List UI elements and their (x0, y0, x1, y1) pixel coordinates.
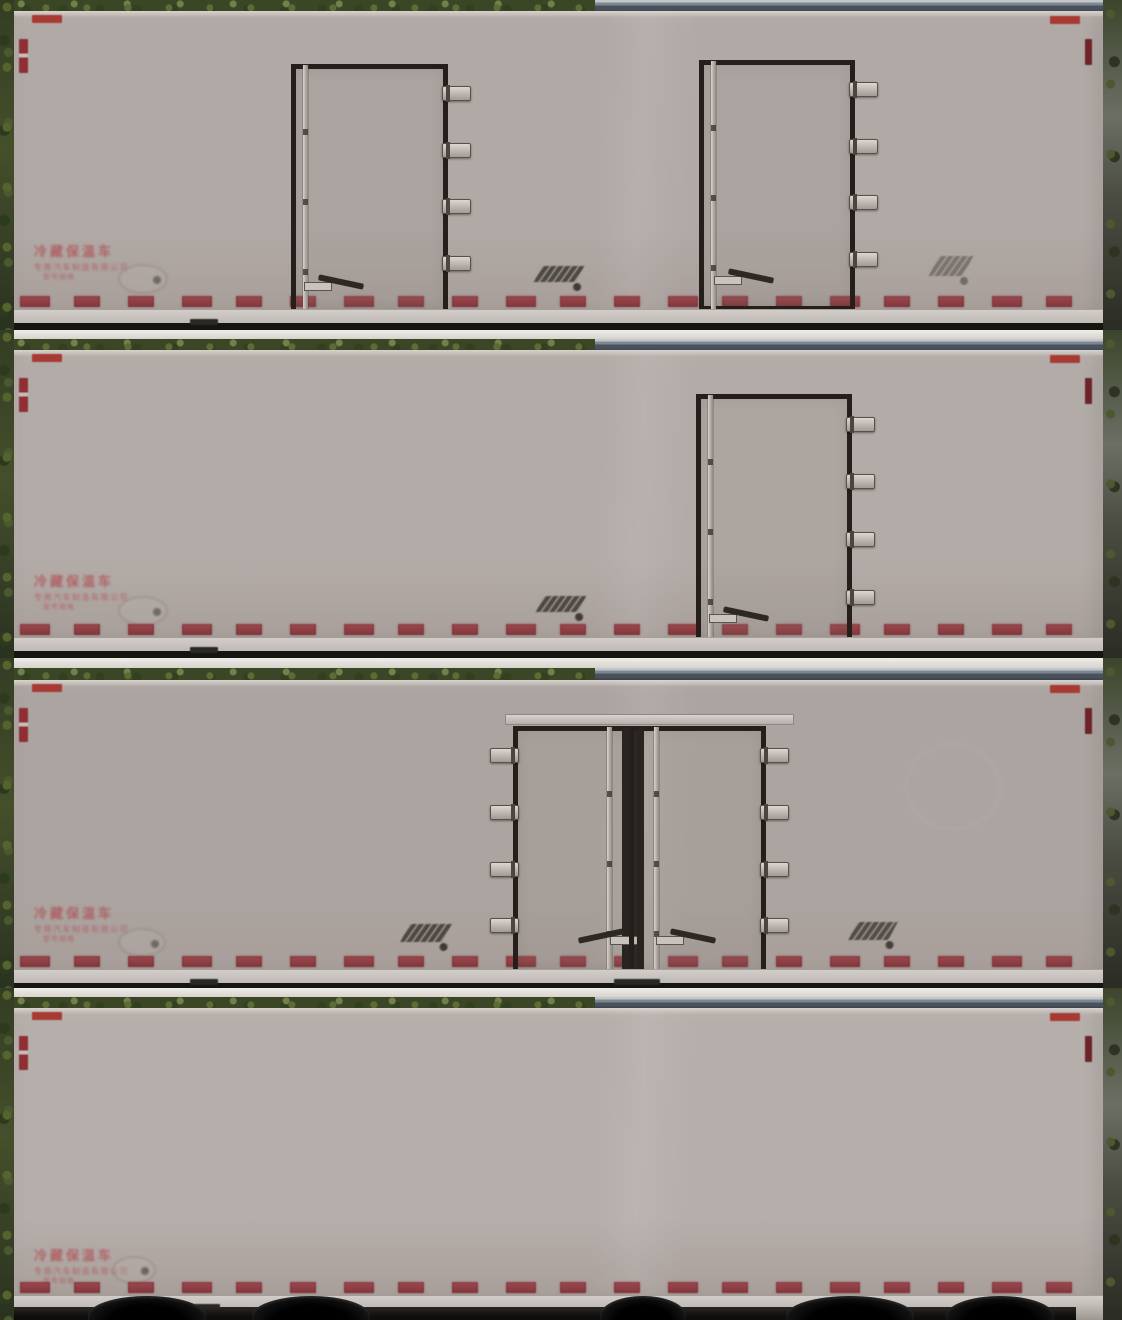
door-hinge (846, 474, 875, 489)
reflective-tape-segment (992, 624, 1022, 635)
reflective-tape-segment (182, 1282, 212, 1293)
reflective-tape-segment (560, 624, 586, 635)
reflector-left-vertical (19, 1036, 28, 1070)
hinge-pin (446, 255, 450, 272)
reflective-tape-segment (884, 1282, 910, 1293)
door-hinge (490, 918, 519, 933)
hinge-pin (511, 861, 515, 878)
reflective-tape-segment (776, 956, 802, 967)
reflective-tape-segment (290, 1282, 316, 1293)
reflective-tape-segment (20, 624, 50, 635)
hinge-pin (850, 473, 854, 490)
reflective-tape-segment (668, 296, 698, 307)
underbody-area (0, 1307, 1122, 1320)
reflective-tape-segment (776, 1282, 802, 1293)
door-handle (709, 607, 771, 625)
reflective-tape-segment (128, 296, 154, 307)
reflective-tape-segment (452, 296, 478, 307)
reflective-tape-segment (992, 1282, 1022, 1293)
door-hinge (760, 862, 789, 877)
door-lock-rod (637, 727, 644, 977)
reflective-tape-segment (884, 624, 910, 635)
cargo-door (699, 60, 855, 311)
left-foliage-edge (0, 988, 14, 1320)
reflective-tape-segment (344, 1282, 374, 1293)
right-background-edge (1103, 330, 1122, 658)
marking-line-3: 型号规格 (43, 604, 129, 611)
handle-keeper-plate (709, 614, 737, 623)
marking-line-3: 型号规格 (43, 936, 129, 943)
reflector-top-right (1050, 355, 1080, 363)
reflective-tape-segment (236, 296, 262, 307)
emblem-dot (575, 613, 583, 621)
photo-strip-side-with-one-door: 冷藏保温车专用汽车制造有限公司型号规格 (0, 330, 1122, 658)
reflective-tape-segment (74, 1282, 100, 1293)
reflector-left-vertical (19, 708, 28, 742)
cargo-box-panel (14, 1008, 1103, 1307)
hinge-pin (446, 142, 450, 159)
oval-logo-emblem (118, 928, 166, 957)
cargo-door (513, 726, 637, 978)
oval-logo-emblem (118, 596, 168, 626)
reflective-tape-segment (1046, 1282, 1072, 1293)
door-hinge (442, 143, 471, 158)
door-hinge (490, 862, 519, 877)
emblem-dot (573, 283, 581, 291)
reflective-tape-segment (884, 296, 910, 307)
panel-marking-text: 冷藏保温车专用汽车制造有限公司型号规格 (34, 246, 129, 281)
door-top-sill (505, 714, 794, 725)
emblem-dot (153, 276, 161, 284)
door-hinge (846, 590, 875, 605)
reflective-tape-segment (128, 624, 154, 635)
marking-line-3: 型号规格 (43, 274, 129, 281)
reflector-right-vertical (1085, 708, 1092, 734)
reflective-tape-segment (668, 1282, 698, 1293)
left-foliage-edge (0, 0, 14, 330)
reflective-tape-segment (290, 624, 316, 635)
reflective-tape-segment (344, 956, 374, 967)
door-handle (656, 929, 718, 947)
light-streak (591, 11, 697, 322)
reflector-top-left (32, 1012, 62, 1020)
left-foliage-edge (0, 658, 14, 988)
reflector-top-left (32, 15, 62, 23)
door-handle (304, 275, 366, 293)
box-top-rail (14, 350, 1103, 355)
reflective-tape-segment (398, 1282, 424, 1293)
hinge-pin (764, 917, 768, 934)
reflective-tape-segment (128, 1282, 154, 1293)
door-hinge (442, 256, 471, 271)
door-hinge (760, 748, 789, 763)
box-top-rail (14, 1008, 1103, 1013)
left-foliage-edge (0, 330, 14, 658)
marking-line-2: 专用汽车制造有限公司 (34, 594, 129, 602)
hinge-pin (850, 531, 854, 548)
hinge-pin (853, 194, 857, 211)
reflective-tape-segment (938, 624, 964, 635)
door-hinge (760, 918, 789, 933)
emblem-dot (886, 941, 894, 949)
hinge-pin (511, 747, 515, 764)
emblem-dot (960, 277, 968, 285)
reflective-tape-segment (182, 956, 212, 967)
reflective-tape-segment (452, 624, 478, 635)
reflective-tape-segment (452, 956, 478, 967)
mud-flap-mark (190, 647, 218, 653)
box-bottom-rail (14, 969, 1103, 983)
reflective-tape-segment (398, 956, 424, 967)
reflector-top-right (1050, 16, 1080, 24)
emblem-dot (151, 940, 159, 948)
reflective-tape-segment (506, 1282, 536, 1293)
door-hinge (442, 199, 471, 214)
faint-circle-mark (905, 744, 1001, 830)
door-hinge (760, 805, 789, 820)
reflective-tape-segment (236, 956, 262, 967)
emblem-dot (141, 1267, 149, 1275)
mud-flap-mark (190, 979, 218, 985)
reflective-tape-segment (560, 1282, 586, 1293)
hinge-pin (764, 804, 768, 821)
hinge-pin (853, 81, 857, 98)
truck-box-photo-montage: 冷藏保温车专用汽车制造有限公司型号规格冷藏保温车专用汽车制造有限公司型号规格冷藏… (0, 0, 1122, 1320)
box-top-rail (14, 11, 1103, 16)
reflective-tape-segment (560, 296, 586, 307)
handle-keeper-plate (656, 936, 684, 945)
reflector-left-vertical (19, 378, 28, 412)
reflective-tape-segment (938, 956, 964, 967)
reflective-tape-segment (614, 296, 640, 307)
reflective-tape-segment (290, 956, 316, 967)
box-bottom-rail (14, 309, 1103, 323)
reflective-tape-segment (722, 1282, 748, 1293)
box-bottom-rail (14, 637, 1103, 651)
reflective-tape-segment (506, 296, 536, 307)
reflective-tape-segment (74, 296, 100, 307)
reflective-tape-segment (20, 1282, 50, 1293)
door-hinge (849, 82, 878, 97)
photo-seam-gap (0, 330, 1122, 339)
door-handle (714, 269, 776, 287)
cargo-door (291, 64, 448, 315)
reflective-tape-segment (992, 296, 1022, 307)
reflector-top-right (1050, 685, 1080, 693)
door-hinge (846, 532, 875, 547)
reflective-tape-segment (128, 956, 154, 967)
marking-line-2: 专用汽车制造有限公司 (34, 264, 129, 272)
photo-strip-side-with-two-doors: 冷藏保温车专用汽车制造有限公司型号规格 (0, 0, 1122, 330)
light-streak (591, 1008, 697, 1307)
reflective-tape-segment (398, 624, 424, 635)
reflector-left-vertical (19, 39, 28, 73)
hinge-pin (850, 416, 854, 433)
photo-strip-side-with-double-doors: 冷藏保温车专用汽车制造有限公司型号规格 (0, 658, 1122, 988)
reflective-tape-segment (992, 956, 1022, 967)
marking-line-2: 专用汽车制造有限公司 (34, 926, 129, 934)
hinge-pin (850, 589, 854, 606)
hinge-pin (511, 917, 515, 934)
reflector-right-vertical (1085, 39, 1092, 65)
cargo-door (696, 394, 852, 650)
reflective-tape-segment (452, 1282, 478, 1293)
mud-flap-mark (614, 979, 660, 985)
mud-flap-mark (190, 319, 218, 325)
hinge-pin (446, 198, 450, 215)
reflective-tape-segment (20, 296, 50, 307)
reflective-tape-segment (884, 956, 910, 967)
photo-strip-plain-side: 冷藏保温车专用汽车制造有限公司型号规格 (0, 988, 1122, 1320)
right-background-edge (1103, 0, 1122, 330)
reflective-tape-segment (668, 624, 698, 635)
reflector-top-right (1050, 1013, 1080, 1021)
hinge-pin (853, 251, 857, 268)
reflector-right-vertical (1085, 1036, 1092, 1062)
hinge-pin (853, 138, 857, 155)
photo-seam-gap (0, 988, 1122, 997)
stripe-logo-emblem (536, 596, 587, 612)
hinge-pin (511, 804, 515, 821)
hinge-pin (764, 861, 768, 878)
reflective-tape-segment (344, 624, 374, 635)
reflective-tape-segment (74, 624, 100, 635)
reflective-tape-segment (938, 1282, 964, 1293)
right-background-edge (1103, 988, 1122, 1320)
panel-marking-text: 冷藏保温车专用汽车制造有限公司型号规格 (34, 908, 129, 943)
reflective-tape-segment (938, 296, 964, 307)
reflector-top-left (32, 354, 62, 362)
hinge-pin (764, 747, 768, 764)
handle-keeper-plate (304, 282, 332, 291)
box-top-rail (14, 680, 1103, 685)
cargo-door (629, 726, 766, 978)
reflector-right-vertical (1085, 378, 1092, 404)
marking-line-1: 冷藏保温车 (34, 576, 129, 589)
reflective-tape-segment (1046, 624, 1072, 635)
reflective-tape-segment (236, 1282, 262, 1293)
hinge-pin (446, 85, 450, 102)
reflector-top-left (32, 684, 62, 692)
oval-logo-emblem (118, 264, 168, 294)
door-hinge (846, 417, 875, 432)
reflective-tape-segment (182, 296, 212, 307)
door-hinge (849, 195, 878, 210)
marking-line-1: 冷藏保温车 (34, 246, 129, 259)
emblem-dot (153, 608, 161, 616)
door-hinge (490, 805, 519, 820)
panel-marking-text: 冷藏保温车专用汽车制造有限公司型号规格 (34, 576, 129, 611)
door-hinge (442, 86, 471, 101)
door-hinge (849, 252, 878, 267)
reflective-tape-segment (614, 1282, 640, 1293)
reflective-tape-segment (1046, 956, 1072, 967)
handle-keeper-plate (714, 276, 742, 285)
reflective-tape-segment (506, 624, 536, 635)
marking-line-1: 冷藏保温车 (34, 1250, 129, 1263)
photo-seam-gap (0, 658, 1122, 668)
reflective-tape-segment (614, 624, 640, 635)
oval-logo-emblem (112, 1256, 156, 1284)
reflective-tape-segment (830, 956, 860, 967)
light-streak (591, 350, 697, 650)
reflective-tape-segment (182, 624, 212, 635)
reflective-tape-segment (830, 1282, 860, 1293)
emblem-dot (440, 943, 448, 951)
reflective-tape-segment (74, 956, 100, 967)
marking-line-1: 冷藏保温车 (34, 908, 129, 921)
reflective-tape-segment (1046, 296, 1072, 307)
right-background-edge (1103, 658, 1122, 988)
door-hinge (490, 748, 519, 763)
stripe-logo-emblem (534, 266, 585, 282)
door-hinge (849, 139, 878, 154)
reflective-tape-segment (20, 956, 50, 967)
reflective-tape-segment (236, 624, 262, 635)
